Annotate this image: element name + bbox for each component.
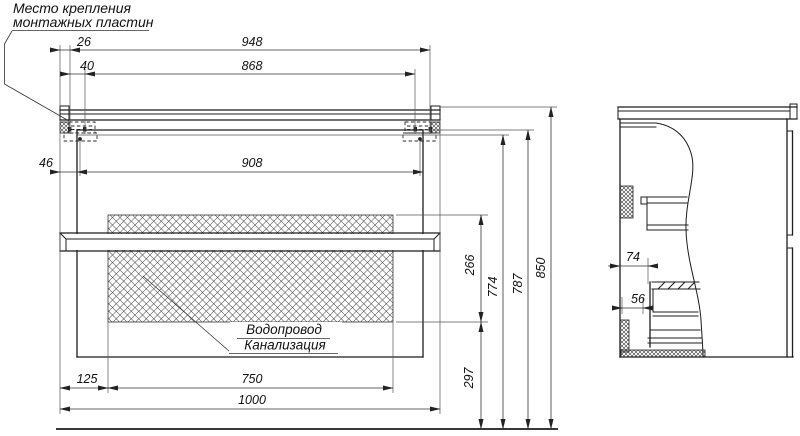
side-countertop: [618, 104, 797, 119]
countertop-right-lip: [431, 106, 440, 120]
section-break-curve: [656, 123, 703, 357]
dim-26-label: 26: [76, 35, 91, 49]
dim-266-label: 266: [463, 255, 477, 277]
zone-label-line1: Водопровод: [246, 322, 322, 337]
upper-drawer-section: [641, 197, 688, 230]
lower-drawer-section: [648, 282, 702, 347]
dim-56: 56: [612, 292, 653, 314]
dim-868-label: 868: [242, 59, 263, 73]
dim-774: 774: [486, 135, 503, 429]
dim-1000: 1000: [60, 393, 440, 409]
dim-787-label: 787: [511, 273, 525, 295]
dim-750-label: 750: [242, 372, 263, 386]
dim-850: 850: [534, 107, 551, 429]
bottom-panel-section: [621, 350, 705, 357]
dim-908: 908: [77, 156, 423, 172]
dim-750: 750: [108, 372, 393, 388]
side-view: 74 56: [608, 104, 797, 357]
countertop: [60, 106, 440, 120]
vanity-dimension-drawing: Водопровод Канализация Место крепления м…: [0, 0, 800, 436]
dim-125-label: 125: [77, 372, 98, 386]
dim-908-label: 908: [242, 156, 263, 170]
dim-26: 26: [50, 35, 91, 50]
plate-center-mark-left: [78, 137, 82, 141]
dim-125: 125: [60, 372, 108, 388]
dim-266: 266: [463, 215, 481, 322]
dim-787: 787: [511, 130, 528, 429]
plate-center-mark-right: [418, 137, 422, 141]
drawer-front-rail: [60, 233, 440, 251]
drawer-fronts-edge: [787, 119, 793, 357]
wall-rail-section-lower: [620, 320, 629, 352]
dim-40: 40: [62, 59, 94, 74]
zone-label-line2: Канализация: [244, 338, 325, 353]
dim-948: 948: [70, 35, 430, 50]
side-countertop-front-lip: [790, 104, 797, 119]
dim-774-label: 774: [486, 277, 500, 298]
dim-56-label: 56: [631, 292, 645, 306]
countertop-left-lip: [60, 106, 69, 120]
dim-74-label: 74: [626, 250, 640, 264]
dim-74: 74: [608, 250, 658, 284]
dim-297-label: 297: [462, 367, 476, 390]
utilities-hatch-zone: [108, 215, 393, 322]
dim-948-label: 948: [242, 35, 263, 49]
dim-850-label: 850: [534, 258, 548, 279]
dim-868: 868: [85, 59, 415, 74]
dim-46: 46: [39, 156, 77, 172]
dim-1000-label: 1000: [238, 393, 266, 407]
front-view: Водопровод Канализация: [60, 106, 440, 357]
technical-drawing-canvas: Водопровод Канализация Место крепления м…: [0, 0, 800, 436]
callout-leader-line: [5, 31, 70, 121]
dim-40-label: 40: [80, 59, 94, 73]
wall-rail-section-upper: [620, 186, 633, 218]
callout-line2: монтажных пластин: [13, 14, 154, 30]
dim-297: 297: [462, 322, 481, 429]
dim-46-label: 46: [39, 156, 53, 170]
